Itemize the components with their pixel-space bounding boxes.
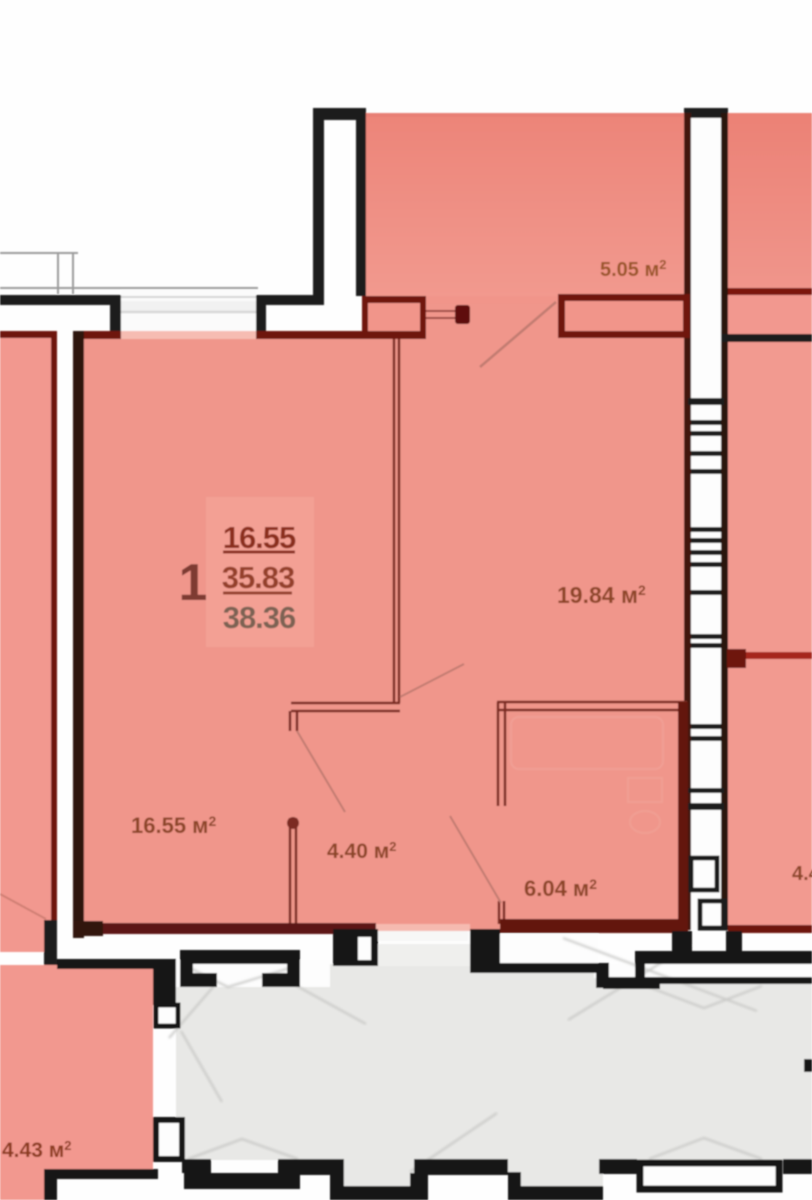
svg-text:38.36: 38.36 <box>223 600 296 635</box>
svg-text:16.55 м2: 16.55 м2 <box>131 813 216 838</box>
svg-text:19.84 м2: 19.84 м2 <box>557 582 646 608</box>
svg-text:6.04 м2: 6.04 м2 <box>524 876 597 901</box>
svg-text:1: 1 <box>179 554 208 612</box>
svg-text:4.4: 4.4 <box>792 863 812 885</box>
svg-text:4.40 м2: 4.40 м2 <box>327 839 396 863</box>
svg-text:4.43 м2: 4.43 м2 <box>2 1138 71 1162</box>
svg-text:35.83: 35.83 <box>222 560 295 595</box>
svg-text:5.05 м2: 5.05 м2 <box>600 257 667 281</box>
svg-text:16.55: 16.55 <box>223 520 296 555</box>
